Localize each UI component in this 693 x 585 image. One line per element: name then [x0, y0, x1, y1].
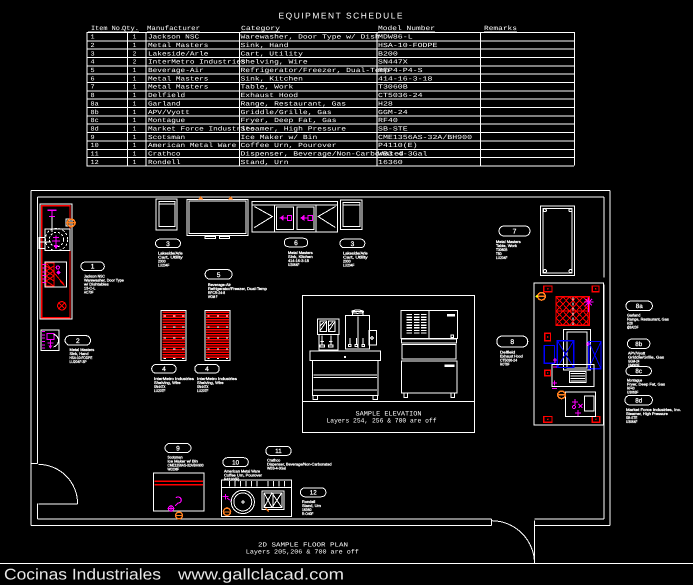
svg-text:LU204F: LU204F	[496, 256, 508, 260]
svg-text:Rondell: Rondell	[148, 159, 181, 166]
svg-text:Market Force Industries: Market Force Industries	[148, 125, 255, 132]
svg-text:GGM-24: GGM-24	[378, 109, 408, 116]
svg-text:8d: 8d	[91, 125, 100, 132]
svg-text:WOM F: WOM F	[208, 295, 218, 299]
svg-text:Manufacturer: Manufacturer	[147, 25, 200, 32]
svg-text:1: 1	[133, 134, 137, 141]
svg-text:8c: 8c	[91, 117, 100, 124]
svg-text:Steamer, High Pressure: Steamer, High Pressure	[241, 125, 347, 132]
svg-text:Garland: Garland	[148, 100, 181, 107]
svg-text:3: 3	[166, 241, 170, 248]
svg-text:414-16-3-18: 414-16-3-18	[378, 75, 433, 82]
svg-text:Metal Masters: Metal Masters	[148, 84, 209, 91]
svg-text:8a: 8a	[636, 303, 643, 310]
svg-text:4: 4	[91, 59, 95, 66]
svg-text:InterMetro Industries: InterMetro Industries	[148, 59, 246, 66]
svg-text:AC70F: AC70F	[84, 291, 94, 295]
svg-text:CT5036-24: CT5036-24	[378, 92, 423, 99]
svg-text:1: 1	[133, 142, 137, 149]
svg-text:Jackson NSC: Jackson NSC	[148, 34, 199, 41]
svg-text:9: 9	[91, 134, 95, 141]
svg-text:Coffee Urn, Pourover: Coffee Urn, Pourover	[241, 142, 337, 149]
svg-text:RF40: RF40	[378, 117, 398, 124]
svg-text:HSA-10-FODPE: HSA-10-FODPE	[378, 42, 438, 49]
svg-text:U3064F: U3064F	[626, 420, 638, 424]
svg-text:1: 1	[133, 109, 137, 116]
svg-text:Beverage-Air: Beverage-Air	[148, 67, 204, 74]
svg-text:1: 1	[91, 34, 95, 41]
svg-text:U3063F: U3063F	[627, 391, 639, 395]
svg-text:Griddle/Grille, Gas: Griddle/Grille, Gas	[241, 109, 333, 116]
svg-text:1: 1	[133, 34, 137, 41]
svg-text:Layers 205,206 & 700 are off: Layers 205,206 & 700 are off	[246, 549, 359, 556]
svg-text:7: 7	[513, 228, 517, 235]
svg-text:SB-STE: SB-STE	[378, 125, 408, 132]
svg-text:2D SAMPLE FLOOR PLAN: 2D SAMPLE FLOOR PLAN	[258, 542, 348, 549]
svg-text:Ice Maker w/ Bin: Ice Maker w/ Bin	[241, 134, 318, 141]
svg-text:7: 7	[91, 84, 95, 91]
svg-text:8b: 8b	[635, 341, 642, 348]
svg-text:2: 2	[76, 338, 80, 345]
svg-text:Metal Masters: Metal Masters	[148, 75, 209, 82]
svg-text:1: 1	[133, 125, 137, 132]
svg-text:8: 8	[91, 92, 95, 99]
svg-text:1: 1	[133, 150, 137, 157]
svg-text:2: 2	[133, 50, 137, 57]
svg-text:11: 11	[275, 448, 282, 455]
svg-text:1: 1	[133, 84, 137, 91]
svg-text:Layers 254, 256 & 700 are off: Layers 254, 256 & 700 are off	[327, 418, 437, 425]
svg-text:3: 3	[91, 50, 95, 57]
svg-text:LU207F: LU207F	[154, 389, 166, 393]
svg-text:Crathco: Crathco	[148, 150, 181, 157]
svg-text:Stand, Urn: Stand, Urn	[241, 159, 289, 166]
svg-text:1: 1	[133, 75, 137, 82]
svg-text:Remarks: Remarks	[484, 25, 517, 32]
svg-text:2: 2	[133, 59, 137, 66]
svg-text:8d: 8d	[635, 397, 642, 404]
svg-text:Metal Masters: Metal Masters	[148, 42, 209, 49]
svg-text:Cocinas Industriales: Cocinas Industriales	[4, 567, 161, 584]
svg-text:Shelving, Wire: Shelving, Wire	[241, 59, 309, 66]
svg-text:SAMPLE ELEVATION: SAMPLE ELEVATION	[356, 410, 422, 417]
svg-text:American Metal Ware: American Metal Ware	[148, 142, 237, 149]
svg-text:LU207F: LU207F	[197, 389, 209, 393]
svg-text:R-O40F: R-O40F	[302, 512, 314, 516]
svg-text:U2064F: U2064F	[288, 263, 300, 267]
svg-text:5: 5	[217, 272, 221, 279]
svg-text:Delfield: Delfield	[148, 92, 186, 99]
svg-text:WB3-4-3Gal: WB3-4-3Gal	[378, 150, 428, 157]
svg-text:Fryer, Deep Fat, Gas: Fryer, Deep Fat, Gas	[241, 117, 337, 124]
svg-text:Model Number: Model Number	[378, 25, 435, 32]
svg-text:12: 12	[91, 159, 100, 166]
svg-text:5: 5	[91, 67, 95, 74]
svg-text:12: 12	[310, 490, 317, 497]
svg-text:LU204F: LU204F	[158, 264, 170, 268]
svg-text:1: 1	[91, 264, 95, 271]
svg-text:Scotsman: Scotsman	[148, 134, 186, 141]
svg-text:8c: 8c	[635, 368, 642, 375]
svg-text:8b: 8b	[91, 109, 100, 116]
svg-text:8: 8	[510, 339, 514, 346]
svg-text:1: 1	[133, 100, 137, 107]
svg-text:Cart, Utility: Cart, Utility	[241, 50, 304, 57]
svg-text:SN447X: SN447X	[378, 59, 408, 66]
svg-text:2: 2	[91, 42, 95, 49]
svg-text:1: 1	[133, 42, 137, 49]
svg-text:Sink, Kitchen: Sink, Kitchen	[241, 75, 304, 82]
svg-text:Range, Restaurant, Gas: Range, Restaurant, Gas	[627, 318, 669, 322]
svg-text:4: 4	[162, 366, 166, 373]
svg-text:Sink, Hand: Sink, Hand	[241, 42, 289, 49]
svg-text:ROT8F: ROT8F	[500, 363, 510, 367]
svg-text:WB3-4-3Gal: WB3-4-3Gal	[267, 466, 286, 470]
svg-text:MDW86-L: MDW86-L	[378, 34, 413, 41]
svg-text:4: 4	[205, 366, 209, 373]
svg-text:1: 1	[133, 117, 137, 124]
svg-text:Qty.: Qty.	[122, 25, 139, 32]
svg-text:Range, Restaurant, Gas: Range, Restaurant, Gas	[241, 100, 347, 107]
svg-text:1: 1	[133, 92, 137, 99]
svg-text:P4110(E): P4110(E)	[224, 478, 240, 482]
svg-text:T3060B: T3060B	[378, 84, 408, 91]
svg-text:LU204F-3P: LU204F-3P	[70, 360, 88, 364]
svg-text:www.gallclacad.com: www.gallclacad.com	[177, 567, 344, 584]
svg-text:Table, Work: Table, Work	[241, 84, 294, 91]
svg-text:6: 6	[294, 240, 298, 247]
svg-text:APV/Vyott: APV/Vyott	[148, 109, 190, 116]
svg-text:1: 1	[133, 159, 137, 166]
svg-text:@3A2DF: @3A2DF	[627, 326, 639, 330]
svg-text:Montague: Montague	[148, 117, 186, 124]
svg-text:10: 10	[232, 459, 239, 466]
svg-text:16360: 16360	[378, 159, 403, 166]
svg-text:10: 10	[91, 142, 100, 149]
svg-text:RFP4-P4-S: RFP4-P4-S	[378, 67, 423, 74]
svg-text:H28: H28	[378, 100, 393, 107]
svg-text:Item No.: Item No.	[91, 25, 124, 32]
svg-text:Category: Category	[241, 25, 280, 32]
svg-text:6: 6	[91, 75, 95, 82]
svg-text:1: 1	[133, 67, 137, 74]
svg-text:Refrigerator/Freezer, Dual-Tem: Refrigerator/Freezer, Dual-Temp	[241, 67, 390, 74]
svg-text:9: 9	[176, 445, 180, 452]
svg-text:Lakeside/Arle: Lakeside/Arle	[148, 50, 209, 57]
svg-text:WO206F: WO206F	[168, 468, 180, 472]
svg-text:CME1356AS-32A/BH900: CME1356AS-32A/BH900	[378, 134, 472, 141]
svg-text:8a: 8a	[91, 100, 100, 107]
svg-text:B200: B200	[378, 50, 398, 57]
svg-text:P4110(E): P4110(E)	[378, 142, 418, 149]
svg-text:LU204F: LU204F	[343, 264, 355, 268]
svg-text:11: 11	[91, 150, 100, 157]
svg-text:3: 3	[351, 241, 355, 248]
svg-text:Exhaust Hood: Exhaust Hood	[241, 92, 299, 99]
svg-text:Warewasher, Door Type w/ Dish: Warewasher, Door Type w/ Dish	[241, 34, 381, 41]
